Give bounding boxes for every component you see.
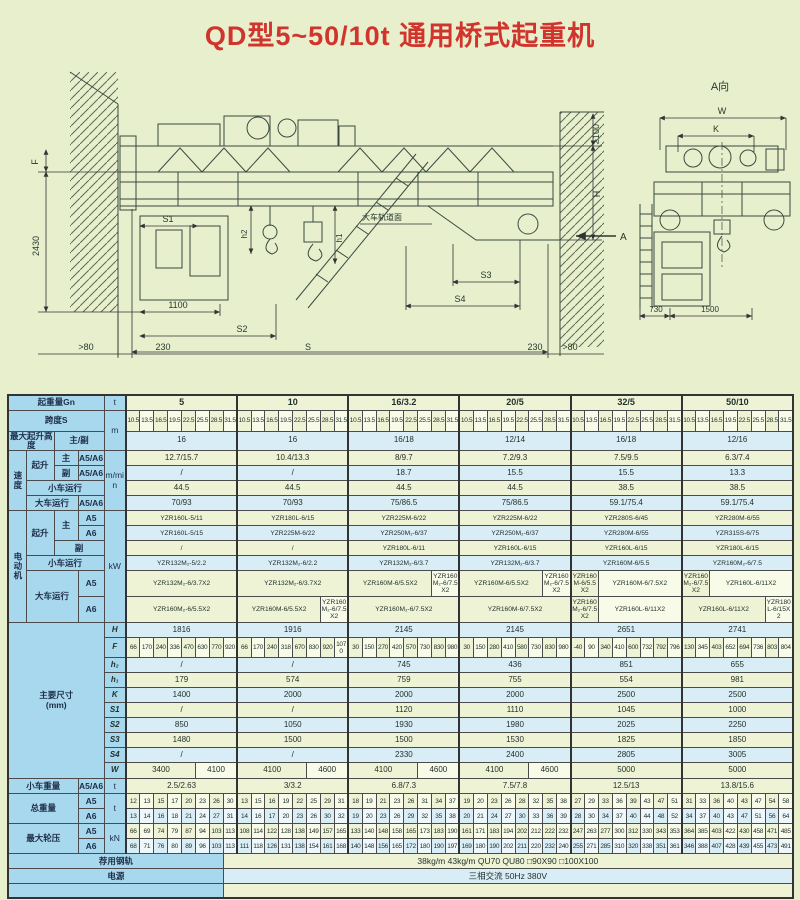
spec-cell: 27 — [571, 794, 585, 809]
spec-cell: YZR160M-6/5.5X2 — [571, 571, 599, 597]
spec-cell: 70/93 — [237, 496, 348, 511]
spec-cell: 730 — [418, 638, 432, 658]
spec-cell: A6 — [78, 809, 104, 824]
spec-cell: 16/18 — [571, 431, 682, 451]
spec-cell: 30 — [348, 638, 362, 658]
spec-cell: 23 — [195, 794, 209, 809]
spec-cell: YZR160M₂-6/5.5X2 — [126, 597, 237, 623]
spec-cell: YZR280S-6/45 — [571, 511, 682, 526]
spec-cell: 170 — [251, 638, 265, 658]
spec-cell: 70/93 — [126, 496, 237, 511]
dim-label-s2: S2 — [236, 324, 247, 334]
spec-cell: 56 — [765, 809, 779, 824]
spec-cell: 180 — [418, 839, 432, 854]
dim-label-h: H — [592, 191, 602, 198]
spec-cell: 271 — [584, 839, 598, 854]
spec-cell: 荐用钢轨 — [8, 854, 223, 869]
spec-cell: 2145 — [348, 623, 459, 638]
spec-cell: 25.5 — [529, 410, 543, 431]
spec-cell: 28.5 — [654, 410, 668, 431]
spec-cell: 37 — [612, 809, 626, 824]
spec-cell: 30 — [584, 809, 598, 824]
spec-cell: 21 — [376, 794, 390, 809]
spec-cell: / — [126, 541, 237, 556]
spec-cell: 3400 — [126, 763, 195, 779]
spec-cell: 13 — [237, 794, 251, 809]
spec-cell: 27 — [209, 809, 223, 824]
spec-cell: 149 — [307, 824, 321, 839]
dim-label-k: K — [713, 124, 719, 134]
spec-cell: 4100 — [348, 763, 417, 779]
spec-cell: YZR132M₂-6/3.7X2 — [237, 571, 348, 597]
spec-cell: 312 — [626, 824, 640, 839]
spec-cell: 232 — [543, 839, 557, 854]
dim-label-1500: 1500 — [701, 305, 719, 314]
end-view — [640, 142, 790, 308]
spec-cell: 131 — [279, 839, 293, 854]
spec-cell: 111 — [237, 839, 251, 854]
spec-cell: 23 — [376, 809, 390, 824]
spec-cell: YZR160M-6/5.5 — [571, 556, 682, 571]
spec-cell: t — [104, 794, 126, 824]
spec-cell: / — [126, 703, 237, 718]
spec-cell: 64 — [779, 809, 793, 824]
spec-cell: YZR132M₂-5/2.2 — [126, 556, 237, 571]
spec-cell: 28.5 — [209, 410, 223, 431]
spec-cell: 35 — [543, 794, 557, 809]
spec-cell: 346 — [682, 839, 696, 854]
spec-cell: 220 — [529, 839, 543, 854]
spec-cell: 4600 — [529, 763, 571, 779]
spec-cell: 12 — [126, 794, 140, 809]
spec-cell: 140 — [348, 839, 362, 854]
spec-cell: 13.5 — [362, 410, 376, 431]
spec-cell: 31.5 — [779, 410, 793, 431]
spec-cell: t — [104, 395, 126, 410]
spec-cell: YZR160L-5/11 — [126, 511, 237, 526]
spec-cell: 10.5 — [126, 410, 140, 431]
spec-cell: 133 — [348, 824, 362, 839]
spec-cell: 68 — [126, 839, 140, 854]
spec-cell: 38 — [446, 809, 460, 824]
spec-cell: 32/5 — [571, 395, 682, 410]
spec-cell: YZR160M₂-6/7.5X2 — [320, 597, 348, 623]
spec-cell: 1850 — [682, 733, 793, 748]
spec-cell: 副 — [54, 541, 104, 556]
spec-cell: 630 — [195, 638, 209, 658]
section-arrow-label: A — [620, 232, 627, 243]
spec-cell: 12/16 — [682, 431, 793, 451]
spec-cell: 52 — [668, 809, 682, 824]
spec-cell: 29 — [404, 809, 418, 824]
spec-cell: 6.3/7.4 — [682, 451, 793, 466]
spec-cell: 16.5 — [265, 410, 279, 431]
spec-cell: 10.5 — [237, 410, 251, 431]
spec-cell: 26 — [501, 794, 515, 809]
dim-label-230-left: 230 — [155, 342, 170, 352]
spec-cell: 385 — [696, 824, 710, 839]
spec-cell: 170 — [140, 638, 154, 658]
spec-cell: 410 — [612, 638, 626, 658]
spec-cell: 38.5 — [682, 481, 793, 496]
dim-label-2430: 2430 — [31, 236, 41, 256]
spec-cell: 26 — [390, 809, 404, 824]
spec-cell: 31.5 — [223, 410, 237, 431]
spec-cell: 12/14 — [459, 431, 570, 451]
spec-cell: 8/9.7 — [348, 451, 459, 466]
spec-cell: 76 — [154, 839, 168, 854]
spec-cell: 154 — [307, 839, 321, 854]
spec-cell: S3 — [104, 733, 126, 748]
spec-cell: 600 — [626, 638, 640, 658]
spec-cell: 4100 — [195, 763, 237, 779]
spec-cell: -40 — [571, 638, 585, 658]
spec-cell: 89 — [182, 839, 196, 854]
spec-cell: 31 — [223, 809, 237, 824]
spec-cell: 40 — [723, 794, 737, 809]
spec-cell: YZR160M-6/5.5X2 — [237, 597, 320, 623]
spec-cell: 851 — [571, 658, 682, 673]
spec-cell: 5000 — [682, 763, 793, 779]
spec-cell: 340 — [598, 638, 612, 658]
spec-cell: 732 — [640, 638, 654, 658]
spec-cell: S2 — [104, 718, 126, 733]
spec-cell: / — [237, 658, 348, 673]
spec-cell: 458 — [751, 824, 765, 839]
spec-cell: 2145 — [459, 623, 570, 638]
spec-cell: 17 — [168, 794, 182, 809]
spec-cell: 759 — [348, 673, 459, 688]
spec-cell: 202 — [501, 839, 515, 854]
spec-cell: 5 — [126, 395, 237, 410]
spec-cell: 830 — [307, 638, 321, 658]
spec-cell: 2.5/2.63 — [126, 779, 237, 794]
spec-cell: 27 — [501, 809, 515, 824]
spec-cell: 255 — [571, 839, 585, 854]
spec-cell: 161 — [320, 839, 334, 854]
spec-cell: 803 — [765, 638, 779, 658]
spec-cell: 981 — [682, 673, 793, 688]
spec-cell: 三相交流 50Hz 380V — [223, 869, 793, 884]
spec-cell: 263 — [584, 824, 598, 839]
spec-cell: YZR132M₂-6/3.7X2 — [126, 571, 237, 597]
spec-cell: / — [237, 748, 348, 763]
spec-cell: YZR250M₂-6/37 — [459, 526, 570, 541]
spec-cell: 22.5 — [626, 410, 640, 431]
spec-cell: 730 — [529, 638, 543, 658]
spec-cell: 202 — [515, 824, 529, 839]
spec-cell: 20 — [459, 809, 473, 824]
spec-cell: YZR160M-6/7.5X2 — [598, 571, 681, 597]
spec-cell: 跨度S — [8, 410, 104, 431]
spec-cell: 2651 — [571, 623, 682, 638]
spec-cell: 285 — [598, 839, 612, 854]
spec-cell: 1110 — [459, 703, 570, 718]
spec-cell: 38.5 — [571, 481, 682, 496]
spec-cell: 18.7 — [348, 466, 459, 481]
spec-cell: 19 — [362, 794, 376, 809]
spec-cell: 34 — [432, 794, 446, 809]
dim-label-s1: S1 — [162, 214, 173, 224]
spec-table-container: 起重量Gnt51016/3.220/532/550/10跨度Sm10.513.5… — [7, 394, 793, 899]
dim-label-ge100: ≥100 — [591, 124, 601, 144]
spec-cell: 31.5 — [668, 410, 682, 431]
spec-cell: S4 — [104, 748, 126, 763]
spec-cell: 23 — [487, 794, 501, 809]
spec-cell: 655 — [682, 658, 793, 673]
spec-cell: 491 — [779, 839, 793, 854]
spec-cell: 197 — [446, 839, 460, 854]
spec-cell: 25.5 — [640, 410, 654, 431]
spec-cell: 336 — [168, 638, 182, 658]
spec-cell: 38kg/m 43kg/m QU70 QU80 □90X90 □100X100 — [223, 854, 793, 869]
spec-cell: 570 — [404, 638, 418, 658]
spec-cell: 小车运行 — [26, 556, 104, 571]
spec-cell: 1816 — [126, 623, 237, 638]
spec-cell: 起重量Gn — [8, 395, 104, 410]
spec-cell: 13.3 — [682, 466, 793, 481]
spec-cell: 35 — [432, 809, 446, 824]
spec-cell: 19.5 — [723, 410, 737, 431]
spec-cell: 22.5 — [182, 410, 196, 431]
spec-cell: 247 — [571, 824, 585, 839]
spec-cell: 108 — [237, 824, 251, 839]
spec-cell: 1050 — [237, 718, 348, 733]
spec-cell: 31 — [682, 794, 696, 809]
spec-cell: YZR132M₂-6/3.7 — [459, 556, 570, 571]
dim-label-gt80-left: >80 — [78, 342, 93, 352]
spec-cell: 6.8/7.3 — [348, 779, 459, 794]
spec-cell: 138 — [293, 839, 307, 854]
spec-cell: 2741 — [682, 623, 793, 638]
spec-cell: 148 — [376, 824, 390, 839]
spec-cell: 66 — [126, 824, 140, 839]
spec-cell: 270 — [376, 638, 390, 658]
spec-cell: 158 — [390, 824, 404, 839]
spec-sheet-page: QD型5~50/10t 通用桥式起重机 — [0, 0, 800, 900]
spec-cell: YZR132M₂-6/3.7 — [348, 556, 459, 571]
spec-cell: 19.5 — [168, 410, 182, 431]
spec-cell: 13.5 — [251, 410, 265, 431]
spec-cell: 14 — [140, 809, 154, 824]
spec-cell: 33 — [529, 809, 543, 824]
spec-cell: t — [104, 779, 126, 794]
spec-cell: 32 — [418, 809, 432, 824]
spec-cell: 25.5 — [418, 410, 432, 431]
spec-cell: 36 — [543, 809, 557, 824]
spec-cell: 30 — [515, 809, 529, 824]
spec-cell: 2500 — [571, 688, 682, 703]
spec-cell: 小车运行 — [26, 481, 104, 496]
spec-cell: 26 — [307, 809, 321, 824]
spec-cell: 165 — [390, 839, 404, 854]
spec-cell: 30 — [223, 794, 237, 809]
spec-cell: 起升 — [26, 511, 54, 556]
spec-cell: YZR160L-6/15 — [571, 541, 682, 556]
spec-cell: 796 — [668, 638, 682, 658]
spec-cell — [8, 884, 223, 898]
spec-cell: 2330 — [348, 748, 459, 763]
spec-cell: 1070 — [334, 638, 348, 658]
spec-cell: 13.5 — [473, 410, 487, 431]
spec-cell — [223, 884, 793, 898]
spec-cell: 26 — [404, 794, 418, 809]
spec-cell: 54 — [765, 794, 779, 809]
spec-cell: 212 — [529, 824, 543, 839]
spec-cell: 17 — [265, 809, 279, 824]
spec-cell: 1480 — [126, 733, 237, 748]
spec-cell: 580 — [515, 638, 529, 658]
spec-cell: kN — [104, 824, 126, 854]
spec-cell: 16 — [251, 809, 265, 824]
spec-cell: 1045 — [571, 703, 682, 718]
spec-cell: 407 — [710, 839, 724, 854]
spec-cell: 240 — [557, 839, 571, 854]
spec-cell: 755 — [459, 673, 570, 688]
spec-cell: YZR180L-6/15X2 — [765, 597, 793, 623]
spec-cell: 22.5 — [737, 410, 751, 431]
spec-cell: 1916 — [237, 623, 348, 638]
spec-cell: 23 — [390, 794, 404, 809]
spec-cell: 79 — [168, 824, 182, 839]
spec-cell: 19 — [279, 794, 293, 809]
spec-cell: 13.5 — [140, 410, 154, 431]
spec-cell: 1500 — [348, 733, 459, 748]
spec-cell: 71 — [140, 839, 154, 854]
spec-cell: 37 — [446, 794, 460, 809]
spec-cell: 792 — [654, 638, 668, 658]
main-elevation-view — [70, 72, 604, 356]
spec-cell: 179 — [126, 673, 237, 688]
spec-cell: 19 — [459, 794, 473, 809]
spec-cell: 113 — [223, 824, 237, 839]
spec-cell: 速度 — [8, 451, 26, 511]
spec-cell: 7.2/9.3 — [459, 451, 570, 466]
spec-cell: 主 — [54, 511, 78, 541]
spec-cell: YZR160L-6/11X2 — [598, 597, 681, 623]
spec-cell: 165 — [334, 824, 348, 839]
spec-cell: 455 — [751, 839, 765, 854]
spec-cell: 470 — [182, 638, 196, 658]
spec-cell: YZR160L-6/11X2 — [710, 571, 793, 597]
spec-cell: 32 — [334, 809, 348, 824]
spec-cell: 830 — [432, 638, 446, 658]
spec-cell: 16.5 — [376, 410, 390, 431]
spec-cell: 75/86.5 — [348, 496, 459, 511]
spec-cell: 28.5 — [765, 410, 779, 431]
spec-cell: 主/副 — [54, 431, 104, 451]
dim-label-h1: h1 — [335, 233, 344, 242]
spec-cell: 1000 — [682, 703, 793, 718]
spec-cell: YZR180L-6/11 — [348, 541, 459, 556]
spec-cell: 19.5 — [612, 410, 626, 431]
spec-cell: 172 — [404, 839, 418, 854]
spec-cell: 1825 — [571, 733, 682, 748]
spec-cell: YZR160M-6/7.5X2 — [459, 597, 570, 623]
spec-cell: 22.5 — [515, 410, 529, 431]
spec-cell: 4100 — [459, 763, 528, 779]
spec-cell: 190 — [432, 839, 446, 854]
dim-label-w: W — [718, 106, 727, 116]
spec-cell: 最大起升高度 — [8, 431, 54, 451]
spec-cell: 351 — [654, 839, 668, 854]
spec-cell: 22.5 — [293, 410, 307, 431]
spec-cell: 31.5 — [334, 410, 348, 431]
spec-cell: 28.5 — [432, 410, 446, 431]
spec-cell: 43 — [723, 809, 737, 824]
spec-cell: 51 — [751, 809, 765, 824]
spec-cell: YZR250M₁-6/37 — [348, 526, 459, 541]
spec-cell: 40 — [626, 809, 640, 824]
spec-cell: 485 — [779, 824, 793, 839]
spec-cell: 554 — [571, 673, 682, 688]
spec-cell: 47 — [737, 809, 751, 824]
spec-cell: 4600 — [307, 763, 349, 779]
spec-cell: 240 — [154, 638, 168, 658]
spec-cell: 16.5 — [487, 410, 501, 431]
spec-cell: h₂ — [104, 658, 126, 673]
spec-cell: / — [237, 541, 348, 556]
spec-cell: 12.5/13 — [571, 779, 682, 794]
spec-cell: 10 — [237, 395, 348, 410]
spec-cell: h₁ — [104, 673, 126, 688]
spec-cell: 44 — [640, 809, 654, 824]
spec-cell: 157 — [320, 824, 334, 839]
spec-cell: 74 — [154, 824, 168, 839]
spec-cell: 113 — [223, 839, 237, 854]
spec-cell: 180 — [473, 839, 487, 854]
spec-cell: 277 — [598, 824, 612, 839]
spec-cell: 2000 — [237, 688, 348, 703]
spec-cell: 14 — [237, 809, 251, 824]
spec-cell: 大车运行 — [26, 496, 78, 511]
spec-cell: 13.8/15.6 — [682, 779, 793, 794]
spec-cell: 980 — [557, 638, 571, 658]
spec-cell: 19.5 — [279, 410, 293, 431]
spec-cell: YZR160L-5/15 — [126, 526, 237, 541]
spec-cell: YZR160M₂-6/7.5X2 — [571, 597, 599, 623]
spec-cell: 169 — [459, 839, 473, 854]
spec-cell: K — [104, 688, 126, 703]
spec-cell: 194 — [501, 824, 515, 839]
spec-cell: 29 — [320, 794, 334, 809]
spec-cell: 410 — [501, 638, 515, 658]
spec-cell: 330 — [640, 824, 654, 839]
spec-cell: 25.5 — [195, 410, 209, 431]
spec-cell: 2805 — [571, 748, 682, 763]
spec-cell: 7.5/9.5 — [571, 451, 682, 466]
spec-cell: 13.5 — [584, 410, 598, 431]
spec-cell: 345 — [696, 638, 710, 658]
spec-cell: 主要尺寸 (mm) — [8, 623, 104, 779]
spec-cell: A5/A6 — [78, 451, 104, 466]
spec-cell: 31 — [418, 794, 432, 809]
spec-cell: 29 — [584, 794, 598, 809]
end-view-title: A向 — [711, 79, 729, 93]
spec-cell: 44.5 — [126, 481, 237, 496]
spec-cell: 28 — [515, 794, 529, 809]
spec-cell: 3/3.2 — [237, 779, 348, 794]
spec-cell: 388 — [696, 839, 710, 854]
spec-cell: 428 — [723, 839, 737, 854]
spec-cell: 694 — [737, 638, 751, 658]
spec-cell: 37 — [696, 809, 710, 824]
spec-cell: 161 — [459, 824, 473, 839]
spec-cell: 主 — [54, 451, 78, 466]
spec-cell: kW — [104, 511, 126, 623]
spec-cell: 19 — [348, 809, 362, 824]
spec-cell: 28.5 — [543, 410, 557, 431]
